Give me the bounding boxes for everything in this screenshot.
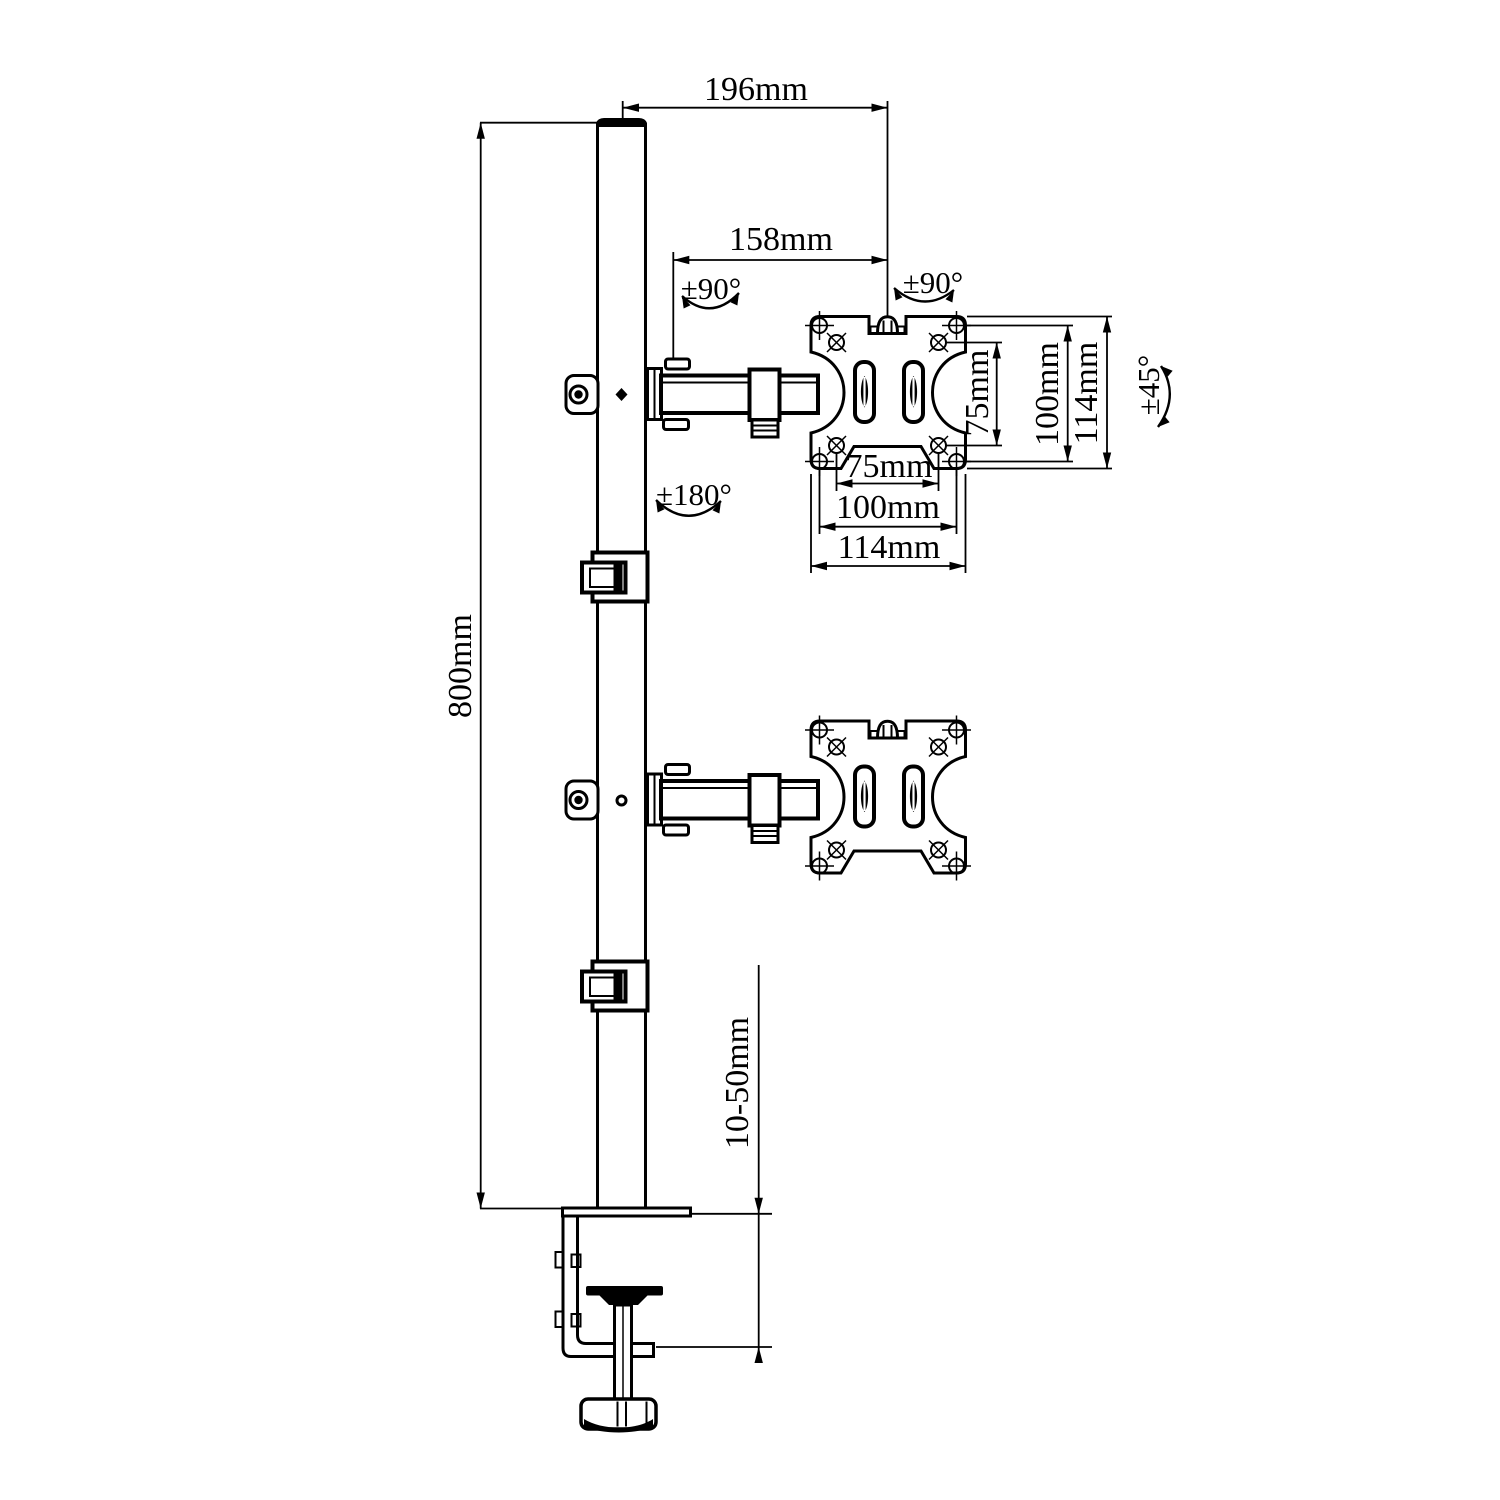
label-vesa-h-114: 114mm <box>838 529 941 566</box>
label-158mm: 158mm <box>729 221 833 258</box>
dimension-labels: 196mm 158mm ±90° ±90° ±180° ±45° 75mm 10… <box>442 71 1166 1149</box>
dimension-196mm <box>623 101 888 316</box>
desk-clamp <box>556 1208 691 1433</box>
clamp-pad <box>586 1286 663 1296</box>
label-vesa-v-75: 75mm <box>959 350 996 437</box>
label-800mm: 800mm <box>442 614 479 718</box>
technical-drawing-monitor-mount: 196mm 158mm ±90° ±90° ±180° ±45° 75mm 10… <box>0 0 1500 1500</box>
label-rotate-180: ±180° <box>656 477 732 512</box>
label-swivel-right: ±90° <box>903 265 963 300</box>
drawing-svg: 196mm 158mm ±90° ±90° ±180° ±45° 75mm 10… <box>0 0 1500 1500</box>
pole-top-cap <box>596 118 647 127</box>
label-clamp-range: 10-50mm <box>719 1017 756 1149</box>
label-tilt-45: ±45° <box>1131 355 1166 415</box>
label-vesa-h-75: 75mm <box>846 448 933 485</box>
label-vesa-h-100: 100mm <box>836 489 940 526</box>
dimension-800mm <box>477 123 598 1209</box>
pole <box>596 118 647 1208</box>
vesa-plate-bottom <box>805 716 971 881</box>
cable-clip-lower <box>582 962 648 1011</box>
label-vesa-v-100: 100mm <box>1029 342 1066 446</box>
dimension-lines <box>477 101 1113 1363</box>
label-swivel-left: ±90° <box>681 271 741 306</box>
label-196mm: 196mm <box>704 71 808 108</box>
cable-clip-upper <box>582 553 648 602</box>
clamp-knob <box>581 1399 656 1433</box>
label-vesa-v-114: 114mm <box>1068 342 1105 445</box>
